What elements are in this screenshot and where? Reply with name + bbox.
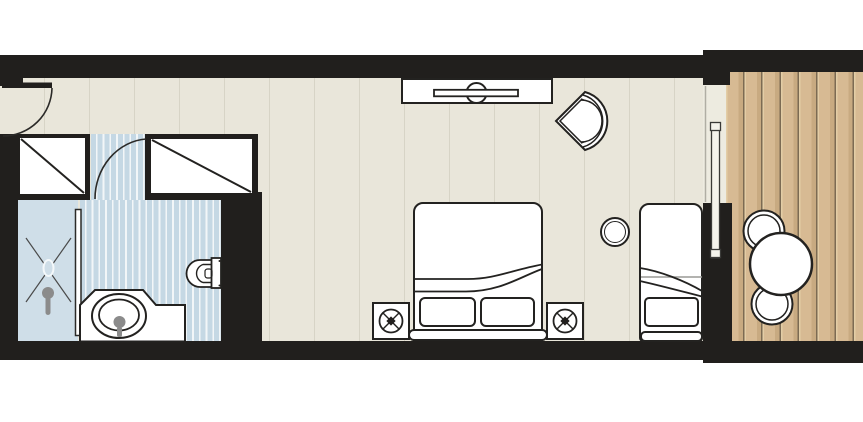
pillow-left bbox=[419, 297, 476, 327]
balcony-wood-deck bbox=[726, 72, 863, 341]
wardrobe-right bbox=[151, 139, 252, 193]
headboard bbox=[408, 329, 548, 341]
wall-left-upper bbox=[0, 55, 23, 86]
wall-top bbox=[0, 55, 708, 78]
daybed-footboard bbox=[640, 331, 703, 342]
tv-console bbox=[401, 78, 553, 104]
wardrobe-left bbox=[20, 138, 85, 194]
bathroom-door-floor bbox=[91, 134, 145, 200]
wall-right-below-door bbox=[703, 203, 732, 341]
wall-top-balcony bbox=[727, 50, 863, 72]
daybed-pillow bbox=[644, 297, 699, 327]
nightstand-right bbox=[546, 302, 584, 340]
bathroom-floor bbox=[80, 200, 221, 341]
pillow-right bbox=[480, 297, 535, 327]
sliding-door-threshold bbox=[703, 85, 727, 203]
wall-bottom-balcony bbox=[703, 341, 863, 363]
wall-bottom bbox=[0, 341, 710, 360]
shower-floor bbox=[18, 200, 78, 341]
wall-bathroom-bedroom bbox=[221, 192, 262, 341]
wall-top-door-jamb bbox=[703, 50, 730, 85]
floor-plan-canvas bbox=[0, 0, 863, 422]
nightstand-left bbox=[372, 302, 410, 340]
side-table-inner-ring bbox=[604, 221, 626, 243]
